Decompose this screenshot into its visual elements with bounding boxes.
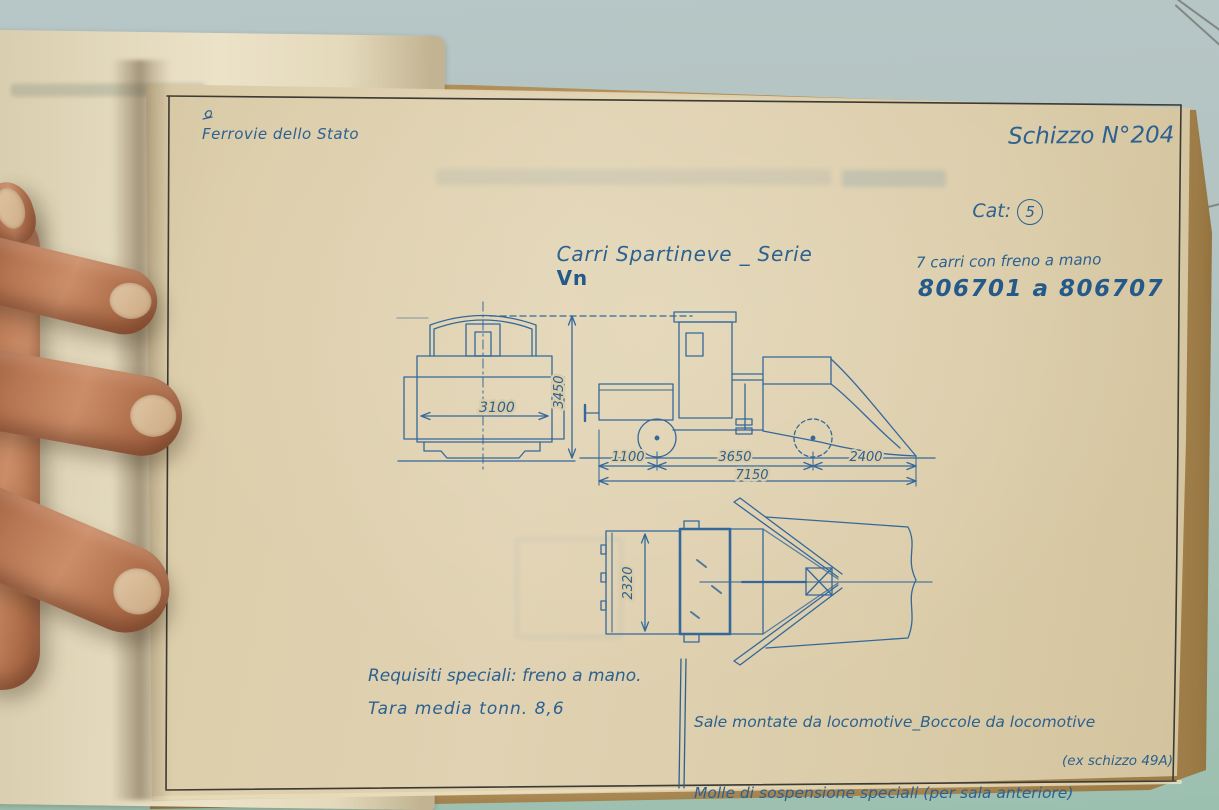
plan-view: 2320 [601, 498, 932, 665]
ring-finger-nail [108, 562, 167, 620]
category-badge: Cat:5 [952, 180, 1043, 244]
notes-divider [679, 659, 686, 788]
notes-right-line1: Sale montate da locomotive_Boccole da lo… [694, 711, 1095, 735]
category-value: 5 [1017, 199, 1043, 225]
photo-scene: 3100 3450 [0, 0, 1219, 810]
drawing-title: Carri Spartineve _ Serie Vn [528, 218, 813, 314]
index-finger-nail [107, 280, 153, 321]
source-sketch-ref: (ex schizzo 49A) [1062, 753, 1173, 769]
notes-right-line2: Molle di sospensione speciali (per sala … [694, 782, 1095, 806]
category-label: Cat: [972, 200, 1011, 222]
side-view: 1100 3650 2400 7150 [580, 312, 935, 486]
notes-right-block: Sale montate da locomotive_Boccole da lo… [694, 664, 1095, 810]
middle-finger-nail [129, 393, 178, 438]
front-view: 3100 [397, 302, 575, 470]
height-dimension: 3450 [490, 316, 692, 458]
dim-body-height: 3450 [552, 375, 567, 408]
thumb-nail [0, 184, 30, 233]
special-requirements-line: Requisiti speciali: freno a mano. [368, 666, 642, 686]
dim-body-width: 2320 [621, 566, 636, 599]
fleet-note: 7 carri con freno a mano [916, 250, 1102, 271]
fleet-numbers: 806701 a 806707 [918, 276, 1164, 302]
agency-name: Ferrovie dello Stato [202, 125, 359, 143]
dim-total-length: 7150 [735, 468, 768, 483]
drawing-title-main: Carri Spartineve _ Serie [557, 242, 813, 266]
drawing-title-series: Vn [557, 266, 588, 290]
tare-weight-line: Tara media tonn. 8,6 [368, 699, 565, 719]
ink-squiggle [203, 111, 212, 119]
sketch-number: Schizzo N°204 [1008, 122, 1175, 149]
dim-front-width: 3100 [479, 400, 515, 416]
dim-front-overhang: 1100 [611, 450, 644, 465]
dim-rear-overhang: 2400 [849, 450, 882, 465]
hand [0, 150, 250, 730]
dim-wheelbase: 3650 [718, 450, 751, 465]
